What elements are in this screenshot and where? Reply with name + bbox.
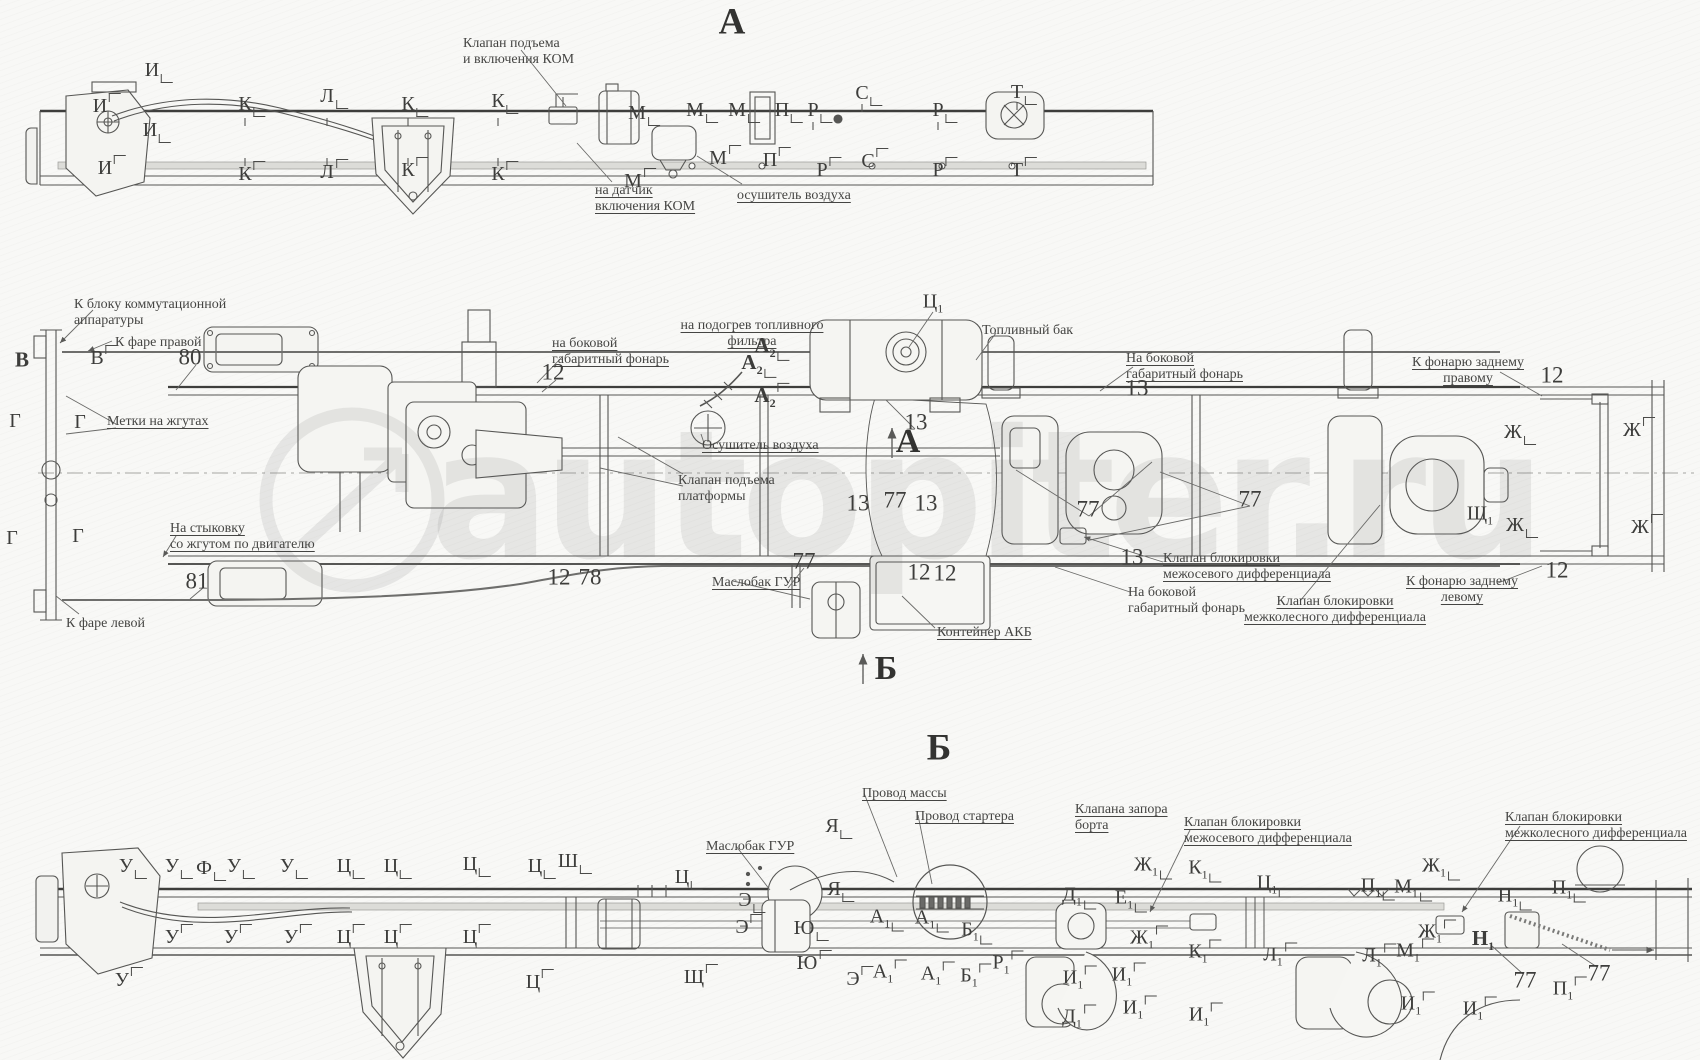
callout-К1: К1 (1188, 858, 1207, 881)
callout-К: К (491, 164, 504, 184)
callout-Ц: Ц (528, 856, 542, 876)
callout-У: У (165, 927, 179, 947)
callout-Ц: Ц (337, 927, 351, 947)
callout-13: 13 (915, 492, 938, 515)
callout-А1: А1 (921, 964, 941, 987)
callout-12: 12 (1541, 364, 1564, 387)
callout-Э: Э (735, 917, 748, 937)
callout-В: В (90, 348, 103, 368)
callout-К: К (491, 91, 504, 111)
callout-Ж: Ж (1504, 422, 1522, 442)
callout-У: У (224, 927, 238, 947)
callout-У: У (165, 856, 179, 876)
callout-М: М (624, 171, 642, 191)
callout-13: 13 (1126, 377, 1149, 400)
callout-Ц: Ц (526, 972, 540, 992)
callout-С: С (855, 83, 868, 103)
callout-И1: И1 (1189, 1005, 1209, 1028)
callout-У: У (227, 856, 241, 876)
callout-12: 12 (908, 561, 931, 584)
callout-И: И (143, 120, 157, 140)
callout-П1: П1 (1552, 878, 1572, 901)
callout-И1: И1 (1463, 999, 1483, 1022)
callout-78: 78 (579, 566, 602, 589)
callout-И: И (93, 96, 107, 116)
callout-Т: Т (1011, 82, 1023, 102)
callout-Л1: Л1 (1263, 945, 1283, 968)
callout-Ю: Ю (797, 953, 818, 973)
callout-Ц: Ц (337, 856, 351, 876)
callout-77: 77 (1514, 969, 1537, 992)
callout-Ж: Ж (1631, 517, 1649, 537)
callout-77: 77 (1239, 488, 1262, 511)
callout-Ю: Ю (794, 918, 815, 938)
callout-У: У (119, 856, 133, 876)
callout-К: К (401, 94, 414, 114)
callout-Э: Э (738, 890, 751, 910)
callout-Р: Р (816, 160, 827, 180)
callout-Г: Г (6, 528, 18, 548)
callout-М1: М1 (1396, 941, 1420, 964)
callout-И1: И1 (1112, 965, 1132, 988)
callout-13: 13 (1121, 546, 1144, 569)
callout-77: 77 (1588, 962, 1611, 985)
callout-Б1: Б1 (960, 966, 977, 989)
callout-К: К (238, 94, 251, 114)
callout-Л: Л (320, 162, 334, 182)
callout-Ц: Ц (384, 856, 398, 876)
callout-П: П (775, 100, 789, 120)
callout-П1: П1 (1553, 979, 1573, 1002)
callout-Ж1: Ж1 (1130, 928, 1154, 951)
callout-М1: М1 (1394, 877, 1418, 900)
callout-Р: Р (807, 100, 818, 120)
callout-В: В (15, 350, 29, 371)
callout-12: 12 (1546, 559, 1569, 582)
callout-А1: А1 (915, 908, 935, 931)
callout-Л: Л (320, 86, 334, 106)
callout-А2: А2 (741, 352, 762, 376)
callout-М: М (686, 100, 704, 120)
callout-Ж1: Ж1 (1422, 856, 1446, 879)
callout-Д1: Д1 (1062, 885, 1082, 908)
callout-А1: А1 (870, 907, 890, 930)
callout-П1: П1 (1361, 876, 1381, 899)
callout-К1: К1 (1188, 942, 1207, 965)
callout-И: И (145, 60, 159, 80)
callout-13: 13 (847, 492, 870, 515)
callout-77: 77 (1077, 498, 1100, 521)
callout-М: М (709, 148, 727, 168)
callout-Ц: Ц (463, 854, 477, 874)
callout-13: 13 (905, 411, 928, 434)
callout-Ц1: Ц1 (923, 292, 943, 315)
callout-Ц: Ц (675, 867, 689, 887)
callout-С: С (861, 151, 874, 171)
callout-Ж: Ж (1506, 515, 1524, 535)
callout-Л1: Л1 (1362, 946, 1382, 969)
callout-Ц: Ц (463, 927, 477, 947)
callout-Н1: Н1 (1498, 886, 1518, 909)
callout-Ж: Ж (1623, 420, 1641, 440)
callout-77: 77 (793, 550, 816, 573)
callout-Д1: Д1 (1062, 1007, 1082, 1030)
callout-И1: И1 (1401, 994, 1421, 1017)
callout-У: У (115, 970, 129, 990)
callout-Г: Г (9, 411, 21, 431)
callout-И1: И1 (1123, 998, 1143, 1021)
callout-М: М (728, 100, 746, 120)
callout-У: У (284, 927, 298, 947)
callouts-layer: ИИИИККЛЛККККМММММППРРССРРТТВВГГГГА2А2А2Ц… (0, 0, 1700, 1060)
callout-У: У (280, 856, 294, 876)
callout-Ш: Ш (558, 851, 578, 871)
callout-Ж1: Ж1 (1418, 922, 1442, 945)
callout-Р1: Р1 (992, 953, 1009, 976)
callout-77: 77 (884, 489, 907, 512)
callout-Щ1: Щ1 (1467, 504, 1493, 527)
callout-П: П (763, 150, 777, 170)
callout-М: М (628, 103, 646, 123)
callout-Ф: Ф (196, 858, 212, 878)
callout-Г: Г (72, 526, 84, 546)
callout-Э: Э (846, 969, 859, 989)
callout-Ж1: Ж1 (1134, 855, 1158, 878)
callout-Т: Т (1011, 160, 1023, 180)
callout-Ц1: Ц1 (1257, 873, 1277, 896)
callout-Р: Р (932, 100, 943, 120)
callout-12: 12 (548, 566, 571, 589)
callout-12: 12 (542, 361, 565, 384)
callout-А1: А1 (873, 962, 893, 985)
callout-К: К (238, 164, 251, 184)
callout-Я: Я (827, 879, 840, 899)
callout-Я: Я (825, 816, 838, 836)
callout-81: 81 (186, 570, 209, 593)
callout-И1: И1 (1063, 968, 1083, 991)
callout-Б1: Б1 (961, 920, 978, 943)
callout-80: 80 (179, 346, 202, 369)
callout-Р: Р (932, 160, 943, 180)
callout-Н1: Н1 (1472, 928, 1494, 952)
callout-И: И (98, 158, 112, 178)
callout-12: 12 (934, 562, 957, 585)
callout-Щ: Щ (684, 967, 704, 987)
callout-А2: А2 (754, 385, 775, 409)
callout-Е1: Е1 (1115, 888, 1133, 911)
callout-К: К (401, 160, 414, 180)
callout-Г: Г (74, 412, 86, 432)
callout-Ц: Ц (384, 927, 398, 947)
chassis-diagram-sheet: autopiter.ru АБАБ Клапан подъемаи включе… (0, 0, 1700, 1060)
